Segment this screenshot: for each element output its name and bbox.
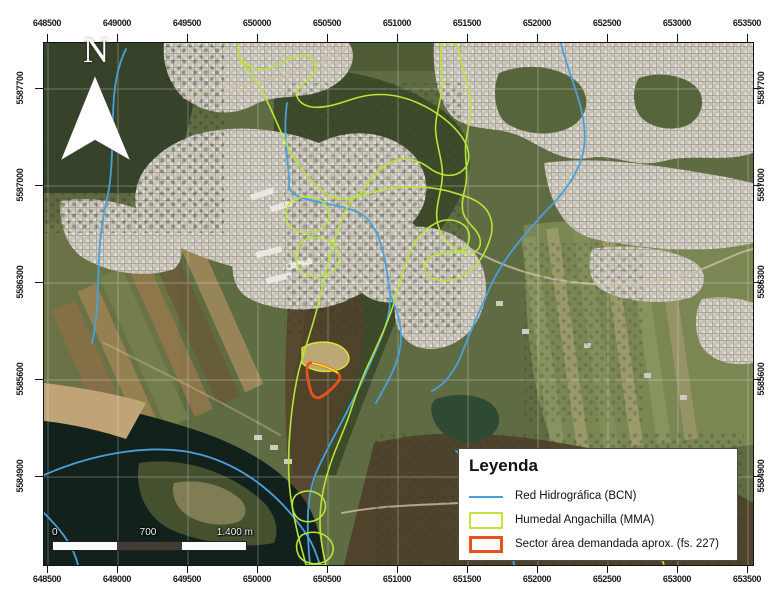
- x-axis-label-top: 652000: [523, 18, 551, 28]
- y-axis-label-left: 5587000: [15, 169, 25, 202]
- scale-label-end: 1.400 m: [217, 527, 253, 538]
- y-axis-label-left: 5585600: [15, 363, 25, 396]
- x-axis-tick-bottom: [467, 565, 468, 573]
- x-axis-tick-top: [747, 34, 748, 42]
- legend-box: Leyenda Red Hidrográfica (BCN) Humedal A…: [458, 448, 738, 561]
- y-axis-label-right: 5584900: [756, 460, 766, 493]
- x-axis-tick-bottom: [257, 565, 258, 573]
- x-axis-label-bottom: 653000: [663, 574, 691, 584]
- x-axis-tick-bottom: [677, 565, 678, 573]
- x-axis-label-top: 650500: [313, 18, 341, 28]
- x-axis-tick-top: [187, 34, 188, 42]
- x-axis-label-top: 648500: [33, 18, 61, 28]
- x-axis-tick-top: [467, 34, 468, 42]
- y-axis-label-left: 5587700: [15, 72, 25, 105]
- y-axis-tick-left: [35, 476, 43, 477]
- legend-title: Leyenda: [469, 456, 727, 476]
- scale-label-start: 0: [52, 527, 58, 538]
- wetland-swatch: [469, 512, 503, 529]
- x-axis-label-bottom: 651500: [453, 574, 481, 584]
- x-axis-tick-bottom: [747, 565, 748, 573]
- y-axis-label-left: 5584900: [15, 460, 25, 493]
- legend-item-sector: Sector área demandada aprox. (fs. 227): [469, 533, 727, 555]
- x-axis-tick-top: [397, 34, 398, 42]
- y-axis-tick-left: [35, 88, 43, 89]
- x-axis-tick-bottom: [47, 565, 48, 573]
- legend-item-wetland: Humedal Angachilla (MMA): [469, 509, 727, 531]
- x-axis-label-top: 649500: [173, 18, 201, 28]
- x-axis-tick-top: [677, 34, 678, 42]
- x-axis-label-bottom: 649000: [103, 574, 131, 584]
- x-axis-tick-top: [47, 34, 48, 42]
- x-axis-label-top: 649000: [103, 18, 131, 28]
- x-axis-label-bottom: 650500: [313, 574, 341, 584]
- north-label: N: [60, 30, 132, 70]
- x-axis-label-bottom: 649500: [173, 574, 201, 584]
- x-axis-tick-bottom: [117, 565, 118, 573]
- scale-bar-graphic: [52, 541, 247, 551]
- north-arrow-icon: [60, 70, 132, 166]
- north-arrow: N: [60, 30, 132, 170]
- x-axis-label-top: 652500: [593, 18, 621, 28]
- x-axis-label-bottom: 652500: [593, 574, 621, 584]
- y-axis-tick-left: [35, 379, 43, 380]
- scale-label-mid: 700: [140, 527, 157, 538]
- scale-bar-labels: 0 700 1.400 m: [52, 527, 252, 541]
- scale-bar: 0 700 1.400 m: [52, 527, 252, 551]
- hydro-line-swatch: [469, 488, 503, 505]
- x-axis-tick-top: [537, 34, 538, 42]
- x-axis-tick-top: [607, 34, 608, 42]
- x-axis-label-bottom: 651000: [383, 574, 411, 584]
- legend-item-label: Red Hidrográfica (BCN): [515, 490, 636, 502]
- legend-item-hydro: Red Hidrográfica (BCN): [469, 485, 727, 507]
- x-axis-label-bottom: 653500: [733, 574, 761, 584]
- x-axis-tick-top: [257, 34, 258, 42]
- x-axis-label-bottom: 650000: [243, 574, 271, 584]
- x-axis-tick-bottom: [537, 565, 538, 573]
- x-axis-tick-top: [327, 34, 328, 42]
- x-axis-label-top: 653500: [733, 18, 761, 28]
- x-axis-tick-bottom: [187, 565, 188, 573]
- x-axis-tick-bottom: [327, 565, 328, 573]
- y-axis-label-left: 5586300: [15, 266, 25, 299]
- y-axis-tick-left: [35, 185, 43, 186]
- x-axis-tick-bottom: [397, 565, 398, 573]
- x-axis-label-top: 651500: [453, 18, 481, 28]
- y-axis-label-right: 5585600: [756, 363, 766, 396]
- x-axis-label-top: 653000: [663, 18, 691, 28]
- x-axis-label-bottom: 652000: [523, 574, 551, 584]
- legend-item-label: Sector área demandada aprox. (fs. 227): [515, 538, 719, 550]
- x-axis-label-top: 650000: [243, 18, 271, 28]
- x-axis-tick-bottom: [607, 565, 608, 573]
- sector-swatch: [469, 536, 503, 553]
- map-document: { "axes": { "x_labels": ["648500","64900…: [0, 0, 768, 593]
- y-axis-label-right: 5587700: [756, 72, 766, 105]
- y-axis-label-right: 5587000: [756, 169, 766, 202]
- x-axis-label-bottom: 648500: [33, 574, 61, 584]
- y-axis-label-right: 5586300: [756, 266, 766, 299]
- x-axis-label-top: 651000: [383, 18, 411, 28]
- y-axis-tick-left: [35, 282, 43, 283]
- legend-item-label: Humedal Angachilla (MMA): [515, 514, 654, 526]
